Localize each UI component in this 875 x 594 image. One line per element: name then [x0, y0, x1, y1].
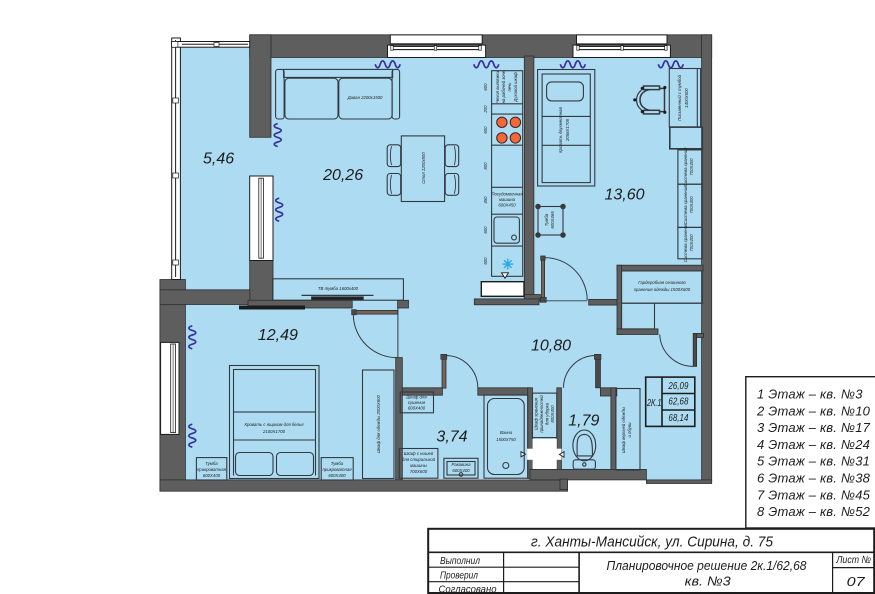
- svg-text:1 Этаж – кв. №3: 1 Этаж – кв. №3: [757, 387, 863, 402]
- svg-text:12,49: 12,49: [258, 327, 298, 344]
- svg-text:700Х600: 700Х600: [410, 469, 428, 474]
- svg-text:13,60: 13,60: [604, 187, 644, 204]
- svg-text:для уборки: для уборки: [545, 402, 550, 425]
- svg-text:2100Х1700: 2100Х1700: [262, 429, 286, 434]
- svg-text:Чехол вытяжки: Чехол вытяжки: [495, 71, 500, 103]
- svg-text:Тумба: Тумба: [205, 461, 218, 466]
- svg-text:Письменный с тумбой: Письменный с тумбой: [677, 74, 682, 120]
- svg-text:1500Х750: 1500Х750: [496, 437, 516, 442]
- svg-text:600: 600: [483, 226, 488, 234]
- svg-text:700Х400: 700Х400: [689, 196, 694, 214]
- svg-text:машины: машины: [410, 463, 428, 468]
- svg-text:4 Этаж – кв. №24: 4 Этаж – кв. №24: [757, 437, 870, 452]
- svg-text:Шкаф для: Шкаф для: [406, 395, 427, 400]
- svg-text:3,74: 3,74: [436, 429, 467, 446]
- svg-text:Тумба: Тумба: [331, 461, 344, 466]
- svg-text:26,09: 26,09: [668, 381, 689, 392]
- svg-text:Система хранения: Система хранения: [683, 185, 688, 225]
- svg-text:20,26: 20,26: [322, 167, 363, 184]
- svg-text:на рабочей зоне: на рабочей зоне: [501, 70, 506, 103]
- svg-text:600Х400: 600Х400: [408, 406, 426, 411]
- svg-text:450: 450: [483, 196, 488, 204]
- svg-text:Тумба: Тумба: [544, 213, 549, 226]
- svg-text:Шкаф верхней одежды: Шкаф верхней одежды: [621, 406, 626, 453]
- svg-text:Шкаф для одежды 2000Х600: Шкаф для одежды 2000Х600: [376, 394, 381, 452]
- svg-text:Система хранения: Система хранения: [683, 147, 688, 187]
- svg-text:62,68: 62,68: [668, 397, 688, 408]
- svg-text:600: 600: [483, 257, 488, 265]
- svg-text:прикроватная: прикроватная: [322, 467, 352, 472]
- svg-text:2058Х1708: 2058Х1708: [565, 118, 570, 142]
- svg-text:3 Этаж – кв. №17: 3 Этаж – кв. №17: [757, 420, 871, 435]
- svg-text:машина: машина: [499, 197, 516, 202]
- svg-text:68,14: 68,14: [668, 413, 688, 424]
- svg-text:принадлежностей: принадлежностей: [539, 395, 544, 433]
- svg-text:600Х450: 600Х450: [498, 203, 516, 208]
- svg-text:Кровать двухместная: Кровать двухместная: [558, 106, 563, 152]
- svg-text:кв. №3: кв. №3: [685, 574, 732, 589]
- svg-text:Шкаф хранения: Шкаф хранения: [534, 397, 539, 430]
- svg-text:5,46: 5,46: [203, 151, 234, 168]
- svg-text:Стол 1200х800: Стол 1200х800: [421, 152, 426, 184]
- svg-text:Проверил: Проверил: [440, 570, 478, 582]
- svg-text:700Х400: 700Х400: [689, 234, 694, 252]
- svg-text:Посудомоечная: Посудомоечная: [491, 192, 523, 197]
- svg-text:Лист №: Лист №: [836, 554, 872, 566]
- svg-text:2 Этаж – кв. №10: 2 Этаж – кв. №10: [756, 403, 871, 418]
- svg-text:800Х400: 800Х400: [550, 405, 555, 423]
- svg-text:Шкаф с нишей: Шкаф с нишей: [404, 451, 434, 456]
- svg-text:и обуви: и обуви: [627, 422, 632, 438]
- svg-text:печь: печь: [507, 82, 512, 92]
- svg-text:600Х465: 600Х465: [550, 211, 555, 229]
- svg-text:Кровать с ящиком для белья: Кровать с ящиком для белья: [244, 422, 304, 427]
- svg-text:2К.1: 2К.1: [646, 398, 661, 409]
- svg-text:Ванна: Ванна: [500, 430, 513, 435]
- svg-text:Раковина: Раковина: [451, 462, 471, 467]
- svg-text:6 Этаж – кв. №38: 6 Этаж – кв. №38: [757, 471, 871, 486]
- svg-text:5 Этаж – кв. №31: 5 Этаж – кв. №31: [757, 454, 870, 469]
- svg-text:Планировочное решение 2к.1/62,: Планировочное решение 2к.1/62,68: [607, 558, 808, 573]
- svg-text:ТВ тумба 1600х400: ТВ тумба 1600х400: [318, 286, 359, 291]
- svg-text:Гардеробная сезонного: Гардеробная сезонного: [638, 280, 686, 285]
- svg-text:г. Ханты-Мансийск, ул. Сирина,: г. Ханты-Мансийск, ул. Сирина, д. 75: [531, 534, 774, 551]
- svg-text:10,80: 10,80: [531, 338, 571, 355]
- svg-text:200: 200: [483, 105, 488, 114]
- svg-text:700Х400: 700Х400: [689, 158, 694, 176]
- svg-text:Выполнил: Выполнил: [440, 555, 480, 567]
- svg-text:хранения одежды 1500Х600: хранения одежды 1500Х600: [633, 287, 691, 292]
- svg-text:Духовой шкаф: Духовой шкаф: [513, 72, 518, 103]
- svg-text:600: 600: [483, 83, 488, 91]
- svg-text:7 Этаж – кв. №45: 7 Этаж – кв. №45: [757, 487, 871, 502]
- svg-text:Согласовано: Согласовано: [439, 583, 497, 594]
- svg-text:07: 07: [847, 574, 866, 589]
- svg-text:600: 600: [483, 126, 488, 134]
- svg-text:1,79: 1,79: [568, 412, 599, 429]
- svg-text:сушения: сушения: [408, 400, 426, 405]
- svg-text:600Х400: 600Х400: [452, 468, 470, 473]
- svg-text:600Х400: 600Х400: [328, 473, 346, 478]
- svg-text:1400Х600: 1400Х600: [684, 88, 689, 108]
- svg-text:600Х400: 600Х400: [203, 473, 221, 478]
- svg-text:Система хранения: Система хранения: [683, 223, 688, 263]
- svg-text:800: 800: [483, 162, 488, 170]
- svg-text:Диван 2200х1500: Диван 2200х1500: [347, 95, 383, 100]
- svg-text:для стиральной: для стиральной: [402, 457, 436, 462]
- svg-text:прикроватная: прикроватная: [197, 467, 227, 472]
- svg-text:8 Этаж – кв. №52: 8 Этаж – кв. №52: [757, 504, 871, 519]
